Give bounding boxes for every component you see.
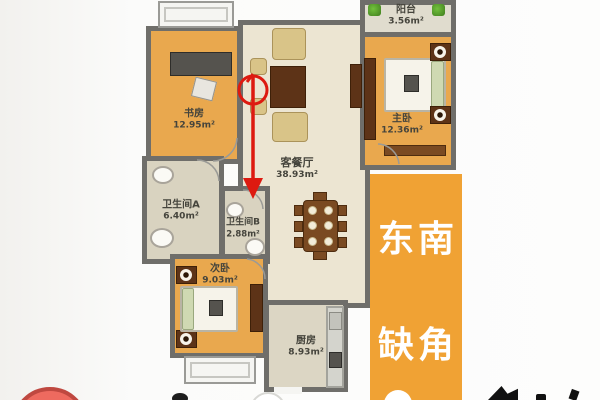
room-name: 厨房 (296, 336, 316, 347)
room-name: 阳台 (396, 5, 416, 16)
southeast-missing-corner-banner: 东南 缺角 (370, 174, 462, 400)
door-arc-study (213, 138, 237, 161)
door-arc-second-bedroom (247, 259, 265, 279)
annotation-arrow-head (243, 178, 263, 199)
room-name: 客餐厅 (280, 156, 313, 169)
room-area: 2.88m² (226, 229, 260, 240)
label-master-bedroom: 主卧 12.36m² (381, 113, 423, 138)
room-name: 次卧 (210, 264, 230, 275)
room-area: 38.93m² (276, 170, 318, 182)
annotation-circle-arrow (239, 74, 267, 199)
label-bathroom-a: 卫生间A 6.40m² (162, 199, 200, 224)
room-area: 3.56m² (388, 17, 424, 29)
label-living-dining: 客餐厅 38.93m² (276, 156, 318, 182)
label-kitchen: 厨房 8.93m² (288, 335, 324, 360)
banner-line2: 缺角 (370, 316, 462, 368)
label-bathroom-b: 卫生间B 2.88m² (226, 218, 260, 241)
door-arc-master (378, 144, 399, 164)
label-study: 书房 12.95m² (173, 108, 215, 133)
room-area: 12.36m² (381, 126, 423, 138)
room-area: 6.40m² (162, 212, 200, 224)
banner-line1: 东南 (370, 210, 462, 262)
room-name: 主卧 (392, 114, 412, 125)
room-area: 8.93m² (288, 348, 324, 360)
door-arc-bathroom-a (197, 160, 219, 181)
floor-plan: 阳台 3.56m² 书房 12.95m² 主卧 12.36m² 客餐厅 38.9… (0, 0, 600, 400)
watermark-dark-shape (536, 394, 546, 400)
room-name: 卫生间B (226, 218, 260, 228)
room-name: 卫生间A (162, 200, 200, 211)
label-balcony: 阳台 3.56m² (388, 4, 424, 29)
room-name: 书房 (184, 109, 204, 120)
room-area: 12.95m² (173, 121, 215, 133)
watermark-dot (172, 393, 188, 400)
label-second-bedroom: 次卧 9.03m² (202, 263, 238, 288)
room-area: 9.03m² (202, 276, 238, 288)
